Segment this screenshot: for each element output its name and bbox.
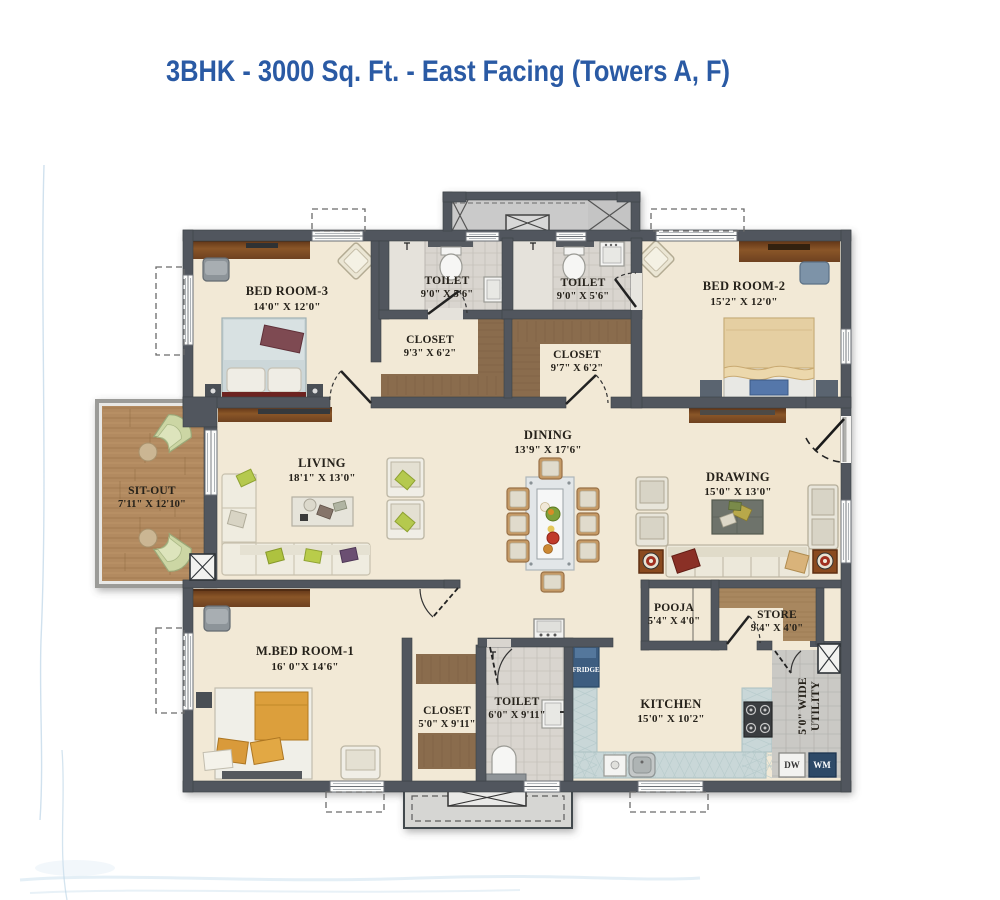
svg-text:3BHK - 3000 Sq. Ft. - East Fac: 3BHK - 3000 Sq. Ft. - East Facing (Tower… <box>166 55 730 88</box>
svg-text:DW: DW <box>784 760 800 770</box>
svg-text:15'0" X 10'2": 15'0" X 10'2" <box>637 713 704 725</box>
svg-text:KITCHEN: KITCHEN <box>640 697 701 711</box>
svg-text:9'0" X 5'6": 9'0" X 5'6" <box>421 289 473 300</box>
svg-text:14'0" X 12'0": 14'0" X 12'0" <box>253 301 320 313</box>
svg-text:TOILET: TOILET <box>424 275 469 287</box>
svg-text:15'0" X 13'0": 15'0" X 13'0" <box>704 486 771 498</box>
svg-text:UTILITY: UTILITY <box>810 681 822 731</box>
svg-text:9'4" X 4'0": 9'4" X 4'0" <box>751 623 803 634</box>
svg-text:WM: WM <box>813 760 831 770</box>
svg-text:TOILET: TOILET <box>494 696 539 708</box>
svg-text:M.BED ROOM-1: M.BED ROOM-1 <box>256 644 354 658</box>
svg-text:7'11" X 12'10": 7'11" X 12'10" <box>118 499 186 510</box>
svg-text:18'1" X 13'0": 18'1" X 13'0" <box>288 472 355 484</box>
svg-text:BED ROOM-3: BED ROOM-3 <box>246 284 329 298</box>
svg-text:15'2" X 12'0": 15'2" X 12'0" <box>710 296 777 308</box>
svg-text:POOJA: POOJA <box>654 602 694 614</box>
svg-text:CLOSET: CLOSET <box>406 334 454 346</box>
svg-text:FRIDGE: FRIDGE <box>572 666 600 674</box>
svg-text:5'0" WIDE: 5'0" WIDE <box>797 677 809 735</box>
svg-text:9'3" X 6'2": 9'3" X 6'2" <box>404 348 456 359</box>
svg-text:9'7" X 6'2": 9'7" X 6'2" <box>551 363 603 374</box>
svg-text:TOILET: TOILET <box>560 277 605 289</box>
svg-text:CLOSET: CLOSET <box>553 349 601 361</box>
svg-text:STORE: STORE <box>757 609 797 621</box>
svg-text:SIT-OUT: SIT-OUT <box>128 485 176 497</box>
svg-text:DINING: DINING <box>524 428 572 442</box>
svg-text:9'0" X 5'6": 9'0" X 5'6" <box>557 291 609 302</box>
svg-text:16' 0"X 14'6": 16' 0"X 14'6" <box>271 661 338 673</box>
svg-text:6'0" X 9'11": 6'0" X 9'11" <box>488 710 545 721</box>
svg-text:DRAWING: DRAWING <box>706 470 770 484</box>
svg-text:CLOSET: CLOSET <box>423 705 471 717</box>
svg-text:LIVING: LIVING <box>298 456 346 470</box>
svg-text:5'0" X 9'11": 5'0" X 9'11" <box>418 719 475 730</box>
svg-text:BED ROOM-2: BED ROOM-2 <box>703 279 786 293</box>
svg-text:5'4" X 4'0": 5'4" X 4'0" <box>648 616 700 627</box>
svg-text:13'9" X 17'6": 13'9" X 17'6" <box>514 444 581 456</box>
